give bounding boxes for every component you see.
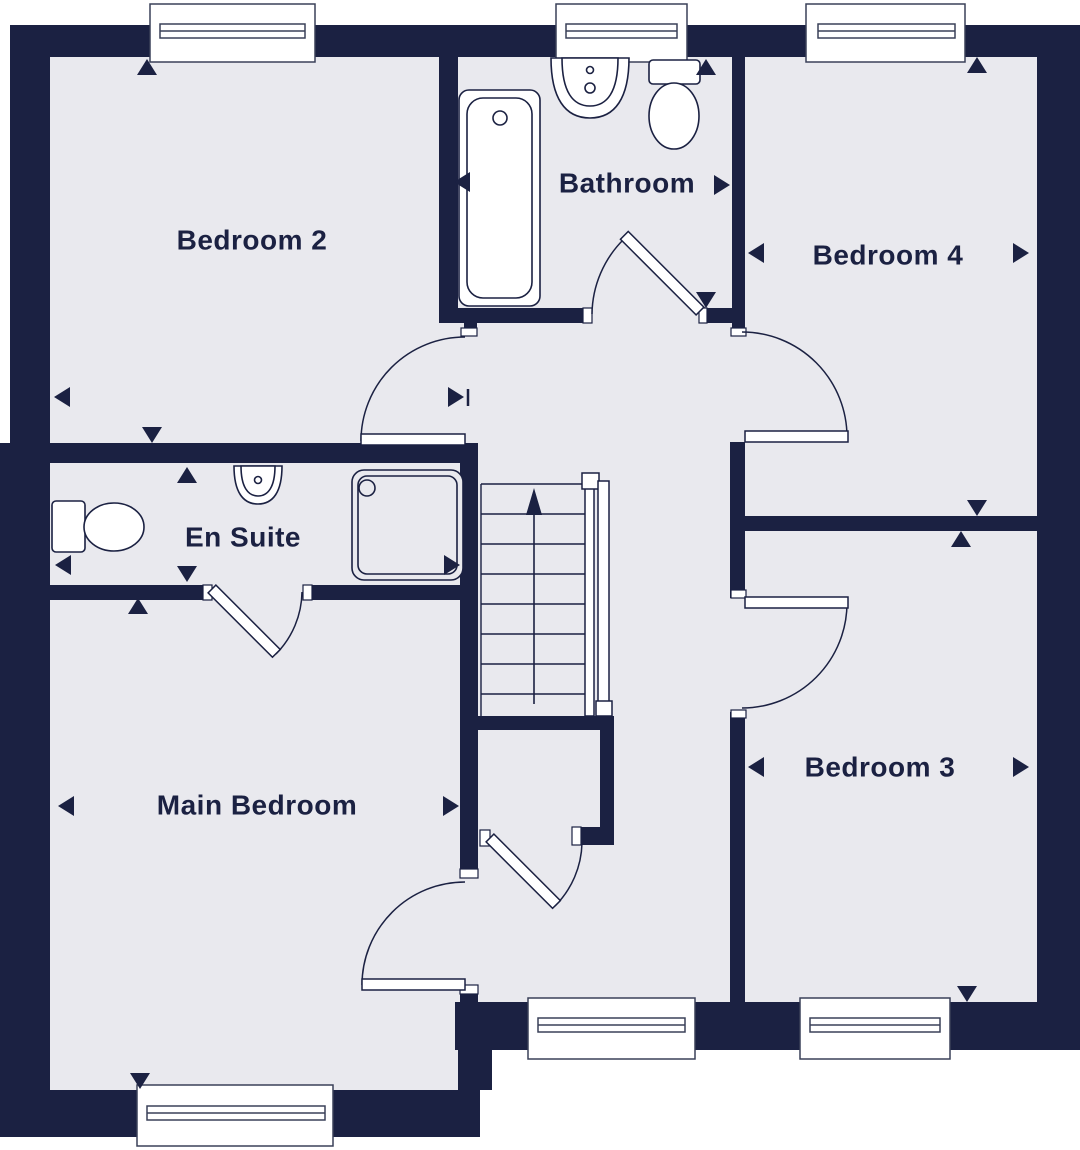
floorplan-canvas: Bedroom 2 Bathroom Bedroom 4 En Suite Ma… bbox=[0, 0, 1080, 1150]
window-bathroom bbox=[556, 4, 687, 62]
bathroom-toilet-icon bbox=[649, 60, 700, 149]
window-main-bedroom bbox=[137, 1085, 333, 1146]
room-label-bedroom2: Bedroom 2 bbox=[177, 225, 328, 256]
floorplan-page: Bedroom 2 Bathroom Bedroom 4 En Suite Ma… bbox=[0, 0, 1080, 1150]
room-label-bathroom: Bathroom bbox=[559, 168, 695, 199]
window-bedroom2 bbox=[150, 4, 315, 62]
window-bedroom3 bbox=[800, 998, 950, 1059]
window-bedroom4 bbox=[806, 4, 965, 62]
stair-newel-top bbox=[582, 473, 599, 489]
room-label-bedroom3: Bedroom 3 bbox=[805, 752, 956, 783]
stair-rail-outer bbox=[598, 481, 609, 716]
stair-rail bbox=[585, 477, 594, 716]
room-label-ensuite: En Suite bbox=[185, 522, 301, 553]
window-hallway bbox=[528, 998, 695, 1059]
room-label-bedroom4: Bedroom 4 bbox=[813, 240, 964, 271]
bath-icon bbox=[459, 90, 540, 306]
ensuite-toilet-icon bbox=[52, 501, 144, 552]
room-label-main-bedroom: Main Bedroom bbox=[157, 790, 357, 821]
stair-newel-bottom bbox=[596, 701, 612, 716]
